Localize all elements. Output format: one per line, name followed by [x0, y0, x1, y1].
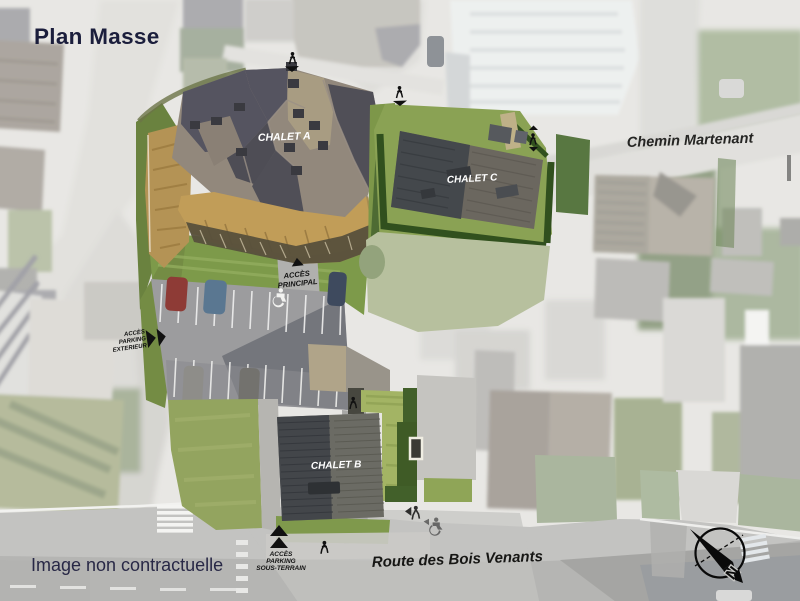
svg-text:PARKING: PARKING	[266, 558, 296, 565]
svg-text:CHALET A: CHALET A	[258, 130, 311, 144]
svg-text:CHALET B: CHALET B	[311, 459, 362, 472]
svg-text:Image non contractuelle: Image non contractuelle	[31, 555, 223, 575]
svg-text:Plan Masse: Plan Masse	[34, 24, 160, 49]
svg-text:ACCÈS: ACCÈS	[269, 549, 293, 558]
svg-text:SOUS-TERRAIN: SOUS-TERRAIN	[256, 565, 306, 572]
